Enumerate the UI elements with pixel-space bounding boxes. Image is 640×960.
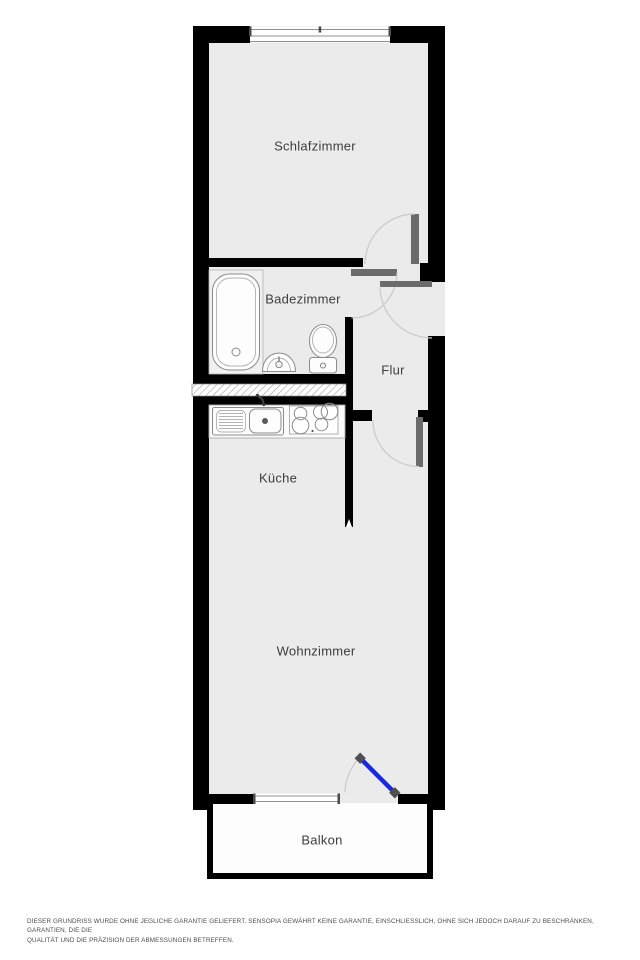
room-label-flur: Flur xyxy=(381,363,404,378)
bathtub xyxy=(209,270,263,374)
disclaimer-line-1: DIESER GRUNDRISS WURDE OHNE JEGLICHE GAR… xyxy=(27,917,627,936)
room-label-badezimmer: Badezimmer xyxy=(265,292,340,307)
bedroom-window xyxy=(249,27,391,43)
livingroom-window xyxy=(253,794,340,805)
room-label-balkon: Balkon xyxy=(301,833,342,848)
disclaimer-line-2: QUALITÄT UND DIE PRÄZISION DER ABMESSUNG… xyxy=(27,936,627,945)
floor-plan: Schlafzimmer Badezimmer Flur Küche Wohnz… xyxy=(0,0,640,960)
disclaimer-text: DIESER GRUNDRISS WURDE OHNE JEGLICHE GAR… xyxy=(27,917,627,945)
stove xyxy=(290,403,339,434)
balcony-wall-right xyxy=(427,803,433,873)
hatched-wall xyxy=(192,384,346,396)
balcony-wall-bottom xyxy=(207,873,433,879)
room-label-schlafzimmer: Schlafzimmer xyxy=(274,139,356,154)
room-label-kueche: Küche xyxy=(259,471,297,486)
balcony-wall-left xyxy=(207,803,213,873)
room-label-wohnzimmer: Wohnzimmer xyxy=(277,644,356,659)
floor-plan-page: Schlafzimmer Badezimmer Flur Küche Wohnz… xyxy=(0,0,640,960)
toilet xyxy=(310,325,337,374)
